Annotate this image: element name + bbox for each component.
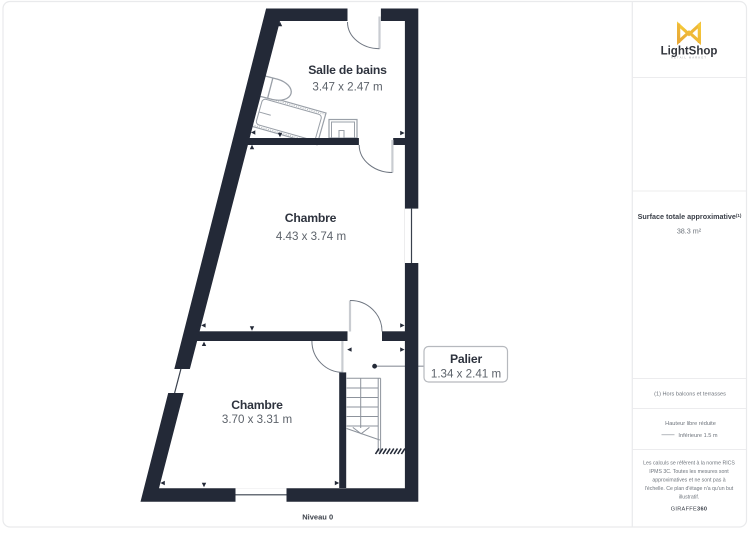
svg-text:3.47 x 2.47 m: 3.47 x 2.47 m [312,81,382,94]
svg-text:38.3 m²: 38.3 m² [677,227,702,236]
svg-text:Chambre: Chambre [231,398,283,412]
svg-text:Surface totale approximative(1: Surface totale approximative(1) [638,212,742,221]
svg-text:RETAIL MARKET: RETAIL MARKET [671,56,707,60]
svg-text:Inférieure 1.5 m: Inférieure 1.5 m [678,433,718,439]
svg-text:Chambre: Chambre [285,211,337,225]
svg-text:l'échelle. Ce plan d'étage n'a: l'échelle. Ce plan d'étage n'a qu'un but [645,486,734,492]
svg-text:IPMS 3C. Toutes les mesures so: IPMS 3C. Toutes les mesures sont [649,469,729,475]
svg-text:illustratif.: illustratif. [679,495,699,501]
svg-text:(1) Hors balcons et terrasses: (1) Hors balcons et terrasses [654,392,726,398]
svg-text:Salle de bains: Salle de bains [308,63,387,77]
svg-text:GIRAFFE360: GIRAFFE360 [671,507,708,513]
svg-text:Hauteur libre réduite: Hauteur libre réduite [665,421,716,427]
svg-text:1.34 x 2.41 m: 1.34 x 2.41 m [431,368,501,381]
svg-text:4.43 x 3.74 m: 4.43 x 3.74 m [276,230,346,243]
svg-text:Les calculs se réfèrent à la n: Les calculs se réfèrent à la norme RICS [643,461,735,467]
svg-text:Niveau 0: Niveau 0 [302,513,333,522]
svg-text:3.70 x 3.31 m: 3.70 x 3.31 m [222,413,292,426]
svg-text:Palier: Palier [450,352,482,366]
svg-text:approximatives et ne sont pas: approximatives et ne sont pas à [652,478,725,484]
